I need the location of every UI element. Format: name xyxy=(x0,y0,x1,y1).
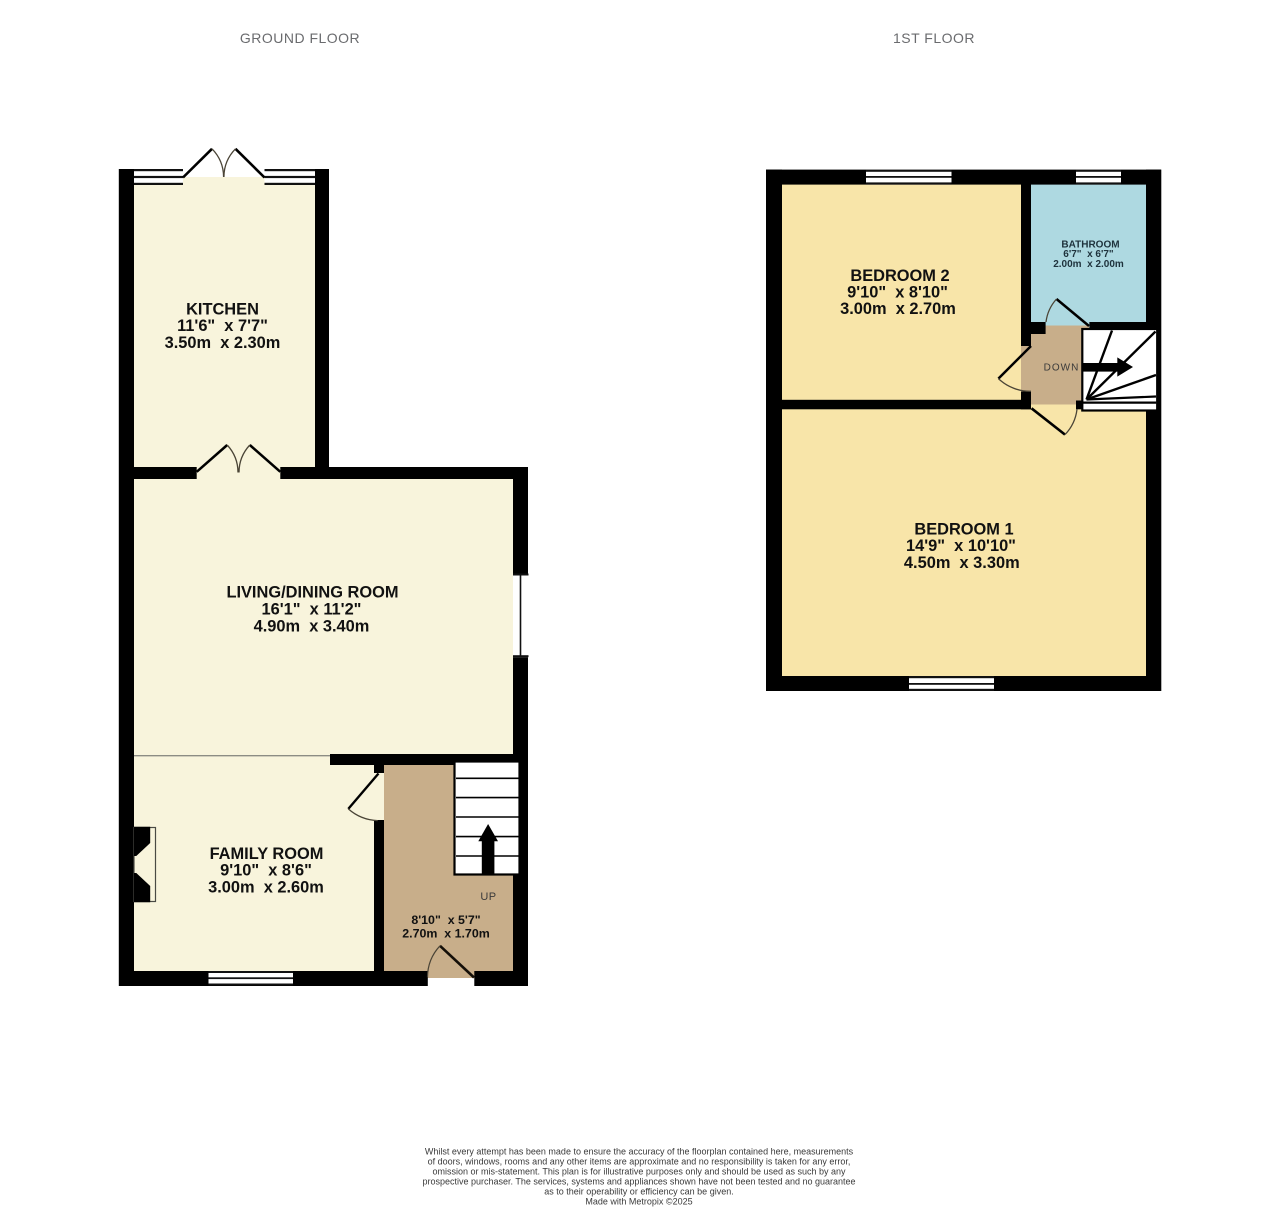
svg-text:of doors, windows, rooms and a: of doors, windows, rooms and any other i… xyxy=(428,1156,851,1166)
svg-text:3.50m x 2.30m: 3.50m x 2.30m xyxy=(165,334,281,352)
svg-text:3.00m x 2.60m: 3.00m x 2.60m xyxy=(208,878,324,896)
svg-text:FAMILY ROOM: FAMILY ROOM xyxy=(210,845,324,863)
svg-text:2.70m x 1.70m: 2.70m x 1.70m xyxy=(402,927,490,941)
svg-text:1ST FLOOR: 1ST FLOOR xyxy=(893,30,975,46)
svg-text:omission or mis-statement. Thi: omission or mis-statement. This plan is … xyxy=(432,1166,846,1176)
svg-text:3.00m x 2.70m: 3.00m x 2.70m xyxy=(840,300,956,318)
svg-text:Made with Metropix ©2025: Made with Metropix ©2025 xyxy=(585,1197,692,1207)
svg-text:DOWN: DOWN xyxy=(1044,363,1080,374)
svg-text:9'10" x 8'10": 9'10" x 8'10" xyxy=(847,284,948,302)
svg-text:Whilst every attempt has been: Whilst every attempt has been made to en… xyxy=(425,1146,854,1156)
svg-text:9'10" x 8'6": 9'10" x 8'6" xyxy=(220,862,312,880)
svg-text:GROUND FLOOR: GROUND FLOOR xyxy=(240,30,360,46)
svg-text:LIVING/DINING ROOM: LIVING/DINING ROOM xyxy=(226,584,398,602)
svg-text:UP: UP xyxy=(480,891,496,903)
svg-text:8'10" x 5'7": 8'10" x 5'7" xyxy=(411,913,480,927)
svg-text:2.00m x 2.00m: 2.00m x 2.00m xyxy=(1053,259,1124,270)
svg-text:KITCHEN: KITCHEN xyxy=(186,300,259,318)
svg-text:11'6" x 7'7": 11'6" x 7'7" xyxy=(177,317,268,335)
svg-text:16'1" x 11'2": 16'1" x 11'2" xyxy=(262,601,362,619)
svg-text:BEDROOM 1: BEDROOM 1 xyxy=(914,520,1013,538)
svg-text:prospective purchaser. The ser: prospective purchaser. The services, sys… xyxy=(422,1176,855,1186)
svg-text:14'9" x 10'10": 14'9" x 10'10" xyxy=(906,537,1016,555)
svg-text:4.90m x 3.40m: 4.90m x 3.40m xyxy=(254,617,370,635)
svg-text:4.50m x 3.30m: 4.50m x 3.30m xyxy=(904,554,1020,572)
svg-text:as to their operability or eff: as to their operability or efficiency ca… xyxy=(544,1186,733,1196)
svg-text:BEDROOM 2: BEDROOM 2 xyxy=(850,267,949,285)
